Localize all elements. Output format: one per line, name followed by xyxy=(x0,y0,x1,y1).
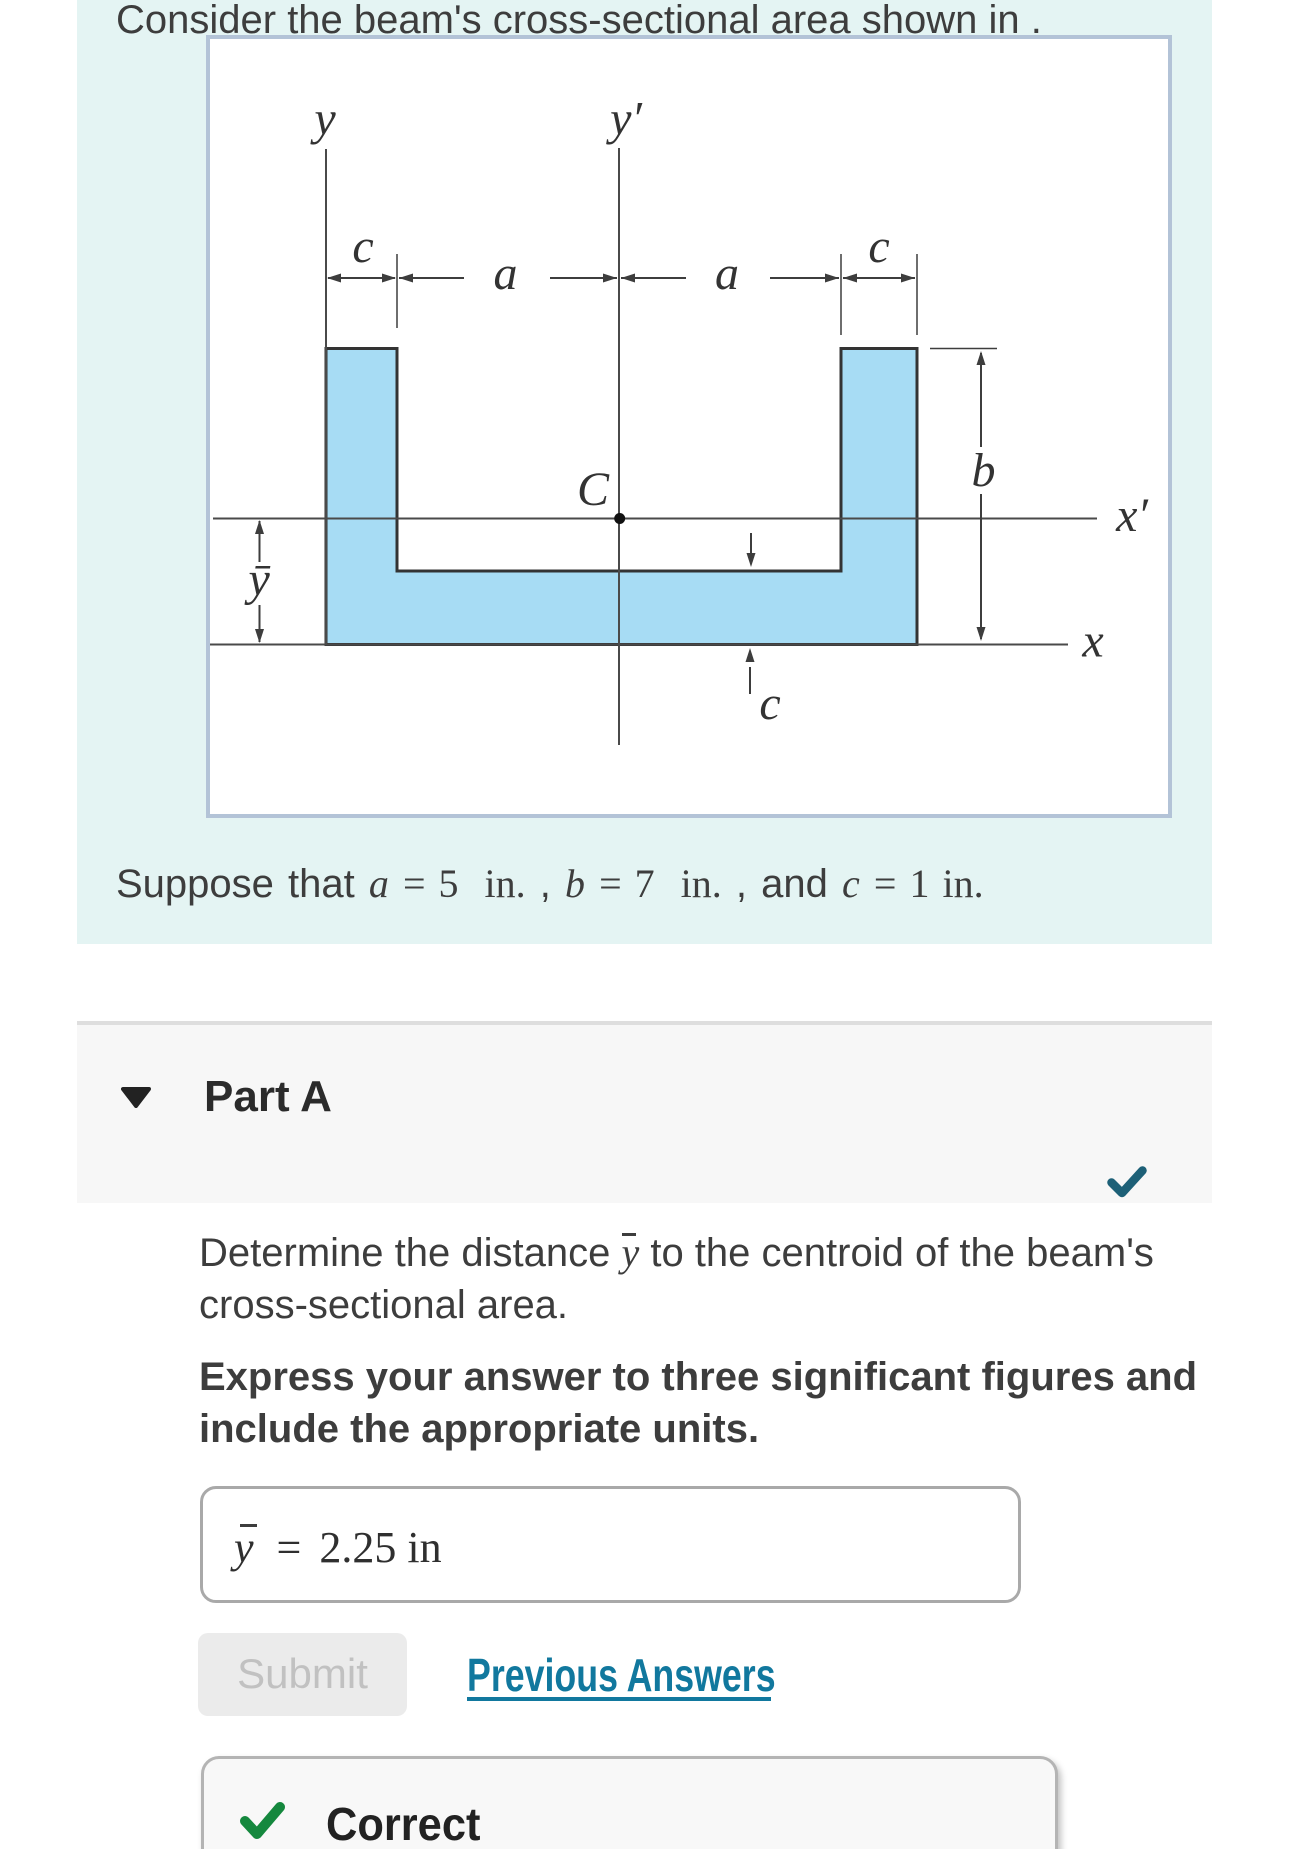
svg-text:c: c xyxy=(352,220,373,273)
svg-text:x: x xyxy=(1081,615,1103,668)
svg-text:a: a xyxy=(494,247,518,300)
svg-text:a: a xyxy=(715,247,739,300)
svg-text:C: C xyxy=(577,463,610,516)
svg-text:c: c xyxy=(759,677,780,730)
svg-text:x′: x′ xyxy=(1115,489,1149,542)
svg-text:c: c xyxy=(868,220,889,273)
svg-text:b: b xyxy=(972,444,996,497)
svg-text:y′: y′ xyxy=(605,93,643,146)
svg-text:ȳ: ȳ xyxy=(244,553,271,606)
svg-text:y: y xyxy=(309,93,336,146)
